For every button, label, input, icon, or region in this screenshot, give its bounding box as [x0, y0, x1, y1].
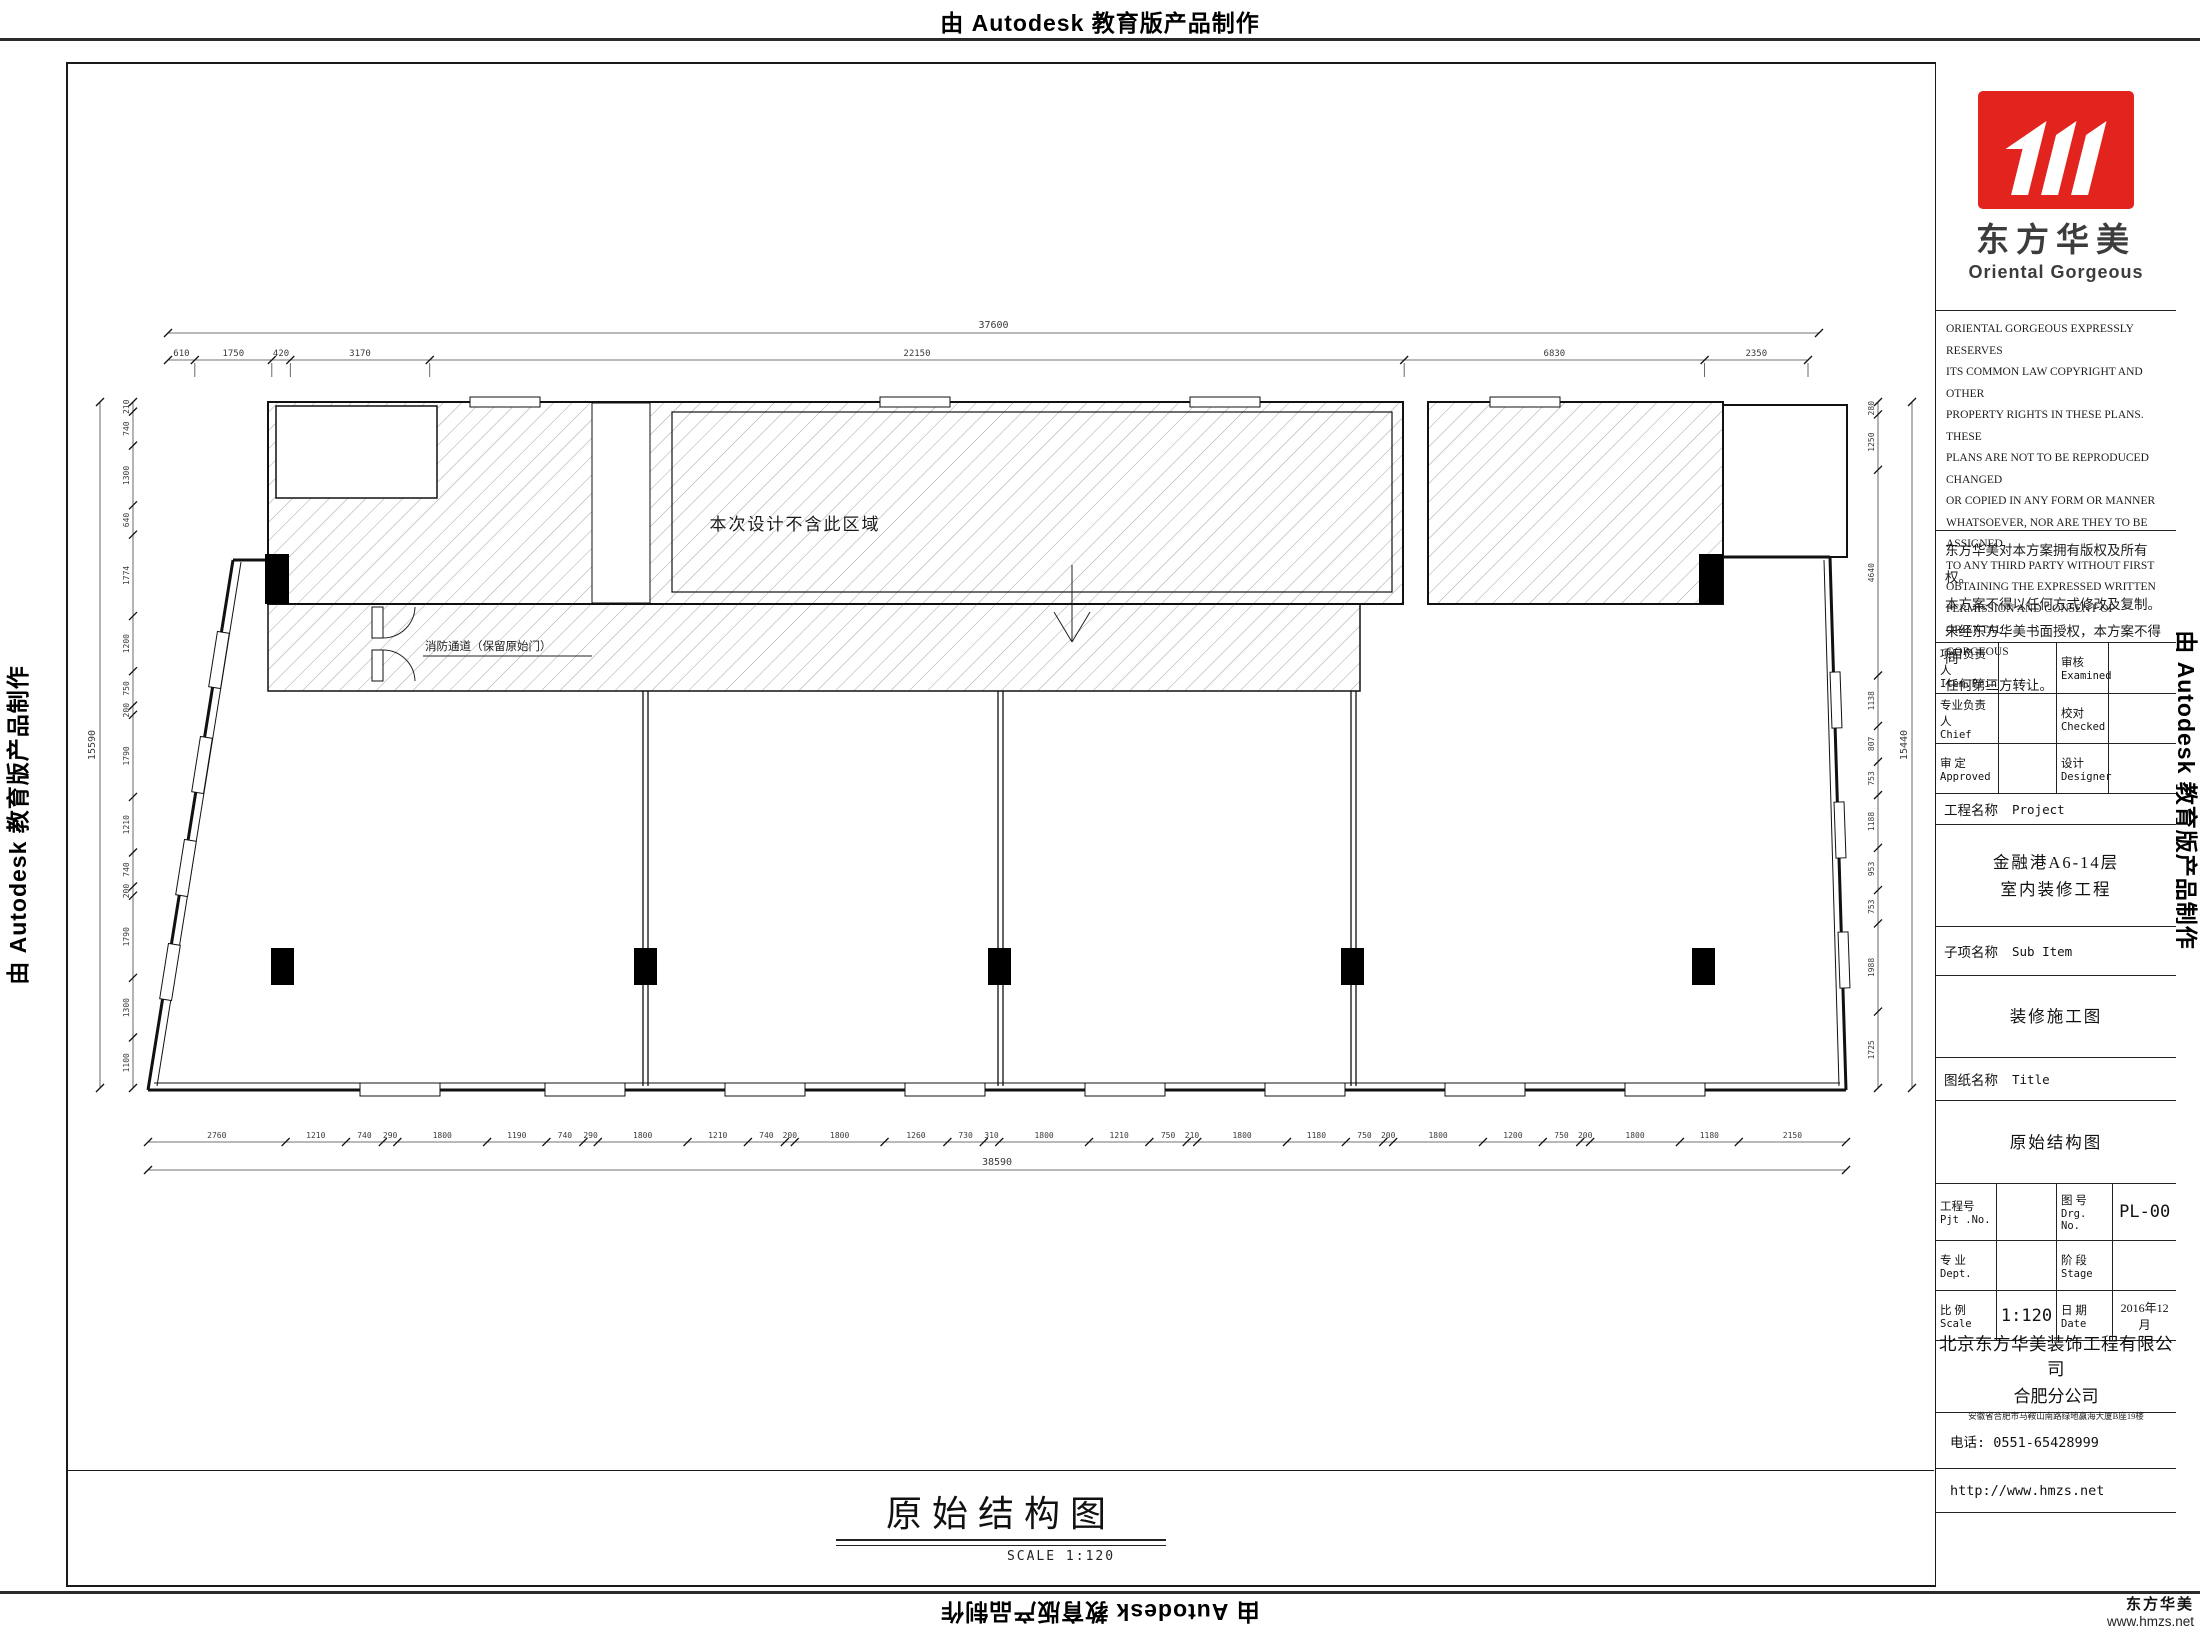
dim-label: 210: [122, 399, 131, 414]
dim-label: 2350: [1745, 349, 1767, 359]
dept-label: 专 业Dept.: [1936, 1241, 1996, 1290]
dim-label: 753: [1867, 899, 1876, 914]
drg-label: 图 号Drg. No.: [2056, 1184, 2112, 1240]
personnel-value: [1998, 643, 2056, 693]
dim-label: 22150: [903, 349, 930, 359]
personnel-label: 专业负责人Chief: [1936, 693, 1998, 743]
dim-label: 1200: [122, 634, 131, 653]
fire-corridor-note: 消防通道（保留原始门）: [425, 639, 552, 653]
watermark-brand: 东方华美: [2107, 1596, 2194, 1613]
company-name: 北京东方华美装饰工程有限公司: [1936, 1331, 2176, 1381]
bottom-separator-line: [0, 1591, 2200, 1594]
personnel-label: 设计Designer: [2056, 743, 2108, 793]
oriental-gorgeous-logo-icon: [1976, 89, 2136, 211]
copyright-chinese: 东方华美对本方案拥有版权及所有权。 本方案不得以任何方式修改及复制。 未经东方华…: [1936, 530, 2176, 642]
dim-label: 1180: [1307, 1131, 1326, 1140]
dim-label: 1210: [1110, 1131, 1129, 1140]
watermark: 东方华美 www.hmzs.net: [2107, 1596, 2194, 1630]
dim-total-label: 38590: [982, 1157, 1012, 1168]
dim-label: 1800: [830, 1131, 849, 1140]
stage-value: [2112, 1241, 2176, 1290]
dim-label: 740: [759, 1131, 774, 1140]
dim-label: 3170: [349, 349, 371, 359]
dim-label: 740: [122, 862, 131, 877]
personnel-value: [2108, 743, 2176, 793]
dim-label: 1800: [1034, 1131, 1053, 1140]
logo-en-text: Oriental Gorgeous: [1968, 262, 2143, 283]
top-separator-line: [0, 38, 2200, 41]
autodesk-banner-bottom: 由 Autodesk 教育版产品制作: [940, 1597, 1260, 1631]
dim-label: 1988: [1867, 958, 1876, 977]
dim-label: 2760: [207, 1131, 226, 1140]
floor-plan-svg: 本次设计不含此区域 消防通道（保留原始门） 376006101750420317…: [66, 62, 1935, 1470]
grid-row-dept: 专 业Dept. 阶 段Stage: [1936, 1240, 2176, 1290]
personnel-value: [1998, 693, 2056, 743]
personnel-label: 校对Checked: [2056, 693, 2108, 743]
dim-label: 200: [122, 703, 131, 718]
dim-label: 290: [583, 1131, 598, 1140]
personnel-label: 审核Examined: [2056, 643, 2108, 693]
empty-cell: [1936, 1512, 2176, 1587]
dim-label: 730: [958, 1131, 973, 1140]
watermark-site: www.hmzs.net: [2107, 1613, 2194, 1630]
dim-label: 1800: [1232, 1131, 1251, 1140]
dim-label: 1800: [1625, 1131, 1644, 1140]
phone-cell: 电话: 0551-65428999: [1936, 1412, 2176, 1468]
dim-label: 1300: [122, 998, 131, 1017]
dim-label: 4640: [1867, 563, 1876, 582]
stage-label: 阶 段Stage: [2056, 1241, 2112, 1290]
dim-label: 807: [1867, 736, 1876, 751]
logo-cn-text: 东方华美: [1976, 213, 2136, 261]
dim-label: 200: [783, 1131, 798, 1140]
grid-row-pjt: 工程号Pjt .No. 图 号Drg. No. PL-00: [1936, 1183, 2176, 1240]
dim-label: 1100: [122, 1053, 131, 1072]
dim-label: 753: [1867, 771, 1876, 786]
dim-label: 750: [1161, 1131, 1176, 1140]
dim-label: 1800: [633, 1131, 652, 1140]
sheet-title-value: 原始结构图: [1936, 1100, 2176, 1183]
project-name: 金融港A6-14层 室内装修工程: [1936, 824, 2176, 926]
dim-label: 1800: [433, 1131, 452, 1140]
dim-label: 1190: [507, 1131, 526, 1140]
dim-label: 210: [1185, 1131, 1200, 1140]
dim-label: 640: [122, 513, 131, 528]
dim-label: 750: [1554, 1131, 1569, 1140]
dept-value: [1996, 1241, 2056, 1290]
dim-label: 1180: [1700, 1131, 1719, 1140]
door-leaf: [372, 650, 383, 681]
personnel-table: 项目负责人Item.Prin 审核Examined 专业负责人Chief 校对C…: [1936, 642, 2176, 793]
subitem-label-row: 子项名称Sub Item: [1936, 926, 2176, 975]
dim-label: 740: [122, 421, 131, 436]
dim-label: 953: [1867, 861, 1876, 876]
dim-label: 1774: [122, 566, 131, 585]
dim-label: 290: [383, 1131, 398, 1140]
dim-label: 1210: [306, 1131, 325, 1140]
dim-label: 200: [1381, 1131, 1396, 1140]
dim-label: 1300: [122, 466, 131, 485]
upper-right-room: [1723, 405, 1847, 557]
company-cell: 北京东方华美装饰工程有限公司 合肥分公司 安徽省合肥市马鞍山南路绿地赢海大厦B座…: [1936, 1340, 2176, 1412]
dim-total-label: 37600: [978, 320, 1008, 331]
door-leaf: [372, 607, 383, 638]
dim-total-label: 15440: [1899, 730, 1910, 760]
copyright-english: ORIENTAL GORGEOUS EXPRESSLY RESERVES ITS…: [1936, 310, 2176, 530]
dim-label: 740: [558, 1131, 573, 1140]
excluded-region-note: 本次设计不含此区域: [710, 515, 881, 534]
dim-label: 310: [984, 1131, 999, 1140]
dim-label: 280: [1867, 401, 1876, 416]
autodesk-banner-left: 由 Autodesk 教育版产品制作: [0, 665, 33, 985]
personnel-label: 审 定Approved: [1936, 743, 1998, 793]
dim-label: 1800: [1428, 1131, 1447, 1140]
pjt-value: [1996, 1184, 2056, 1240]
dim-label: 610: [173, 349, 189, 359]
dim-label: 6830: [1544, 349, 1566, 359]
logo-cell: 东方华美 Oriental Gorgeous: [1936, 62, 2176, 310]
top-hatched-band: [268, 397, 1847, 604]
drawing-title: 原始结构图: [886, 1485, 1116, 1537]
dim-label: 750: [1357, 1131, 1372, 1140]
dim-label: 1260: [906, 1131, 925, 1140]
sheet-title-label-row: 图纸名称Title: [1936, 1057, 2176, 1100]
personnel-value: [2108, 693, 2176, 743]
dim-label: 750: [122, 681, 131, 696]
dim-label: 1138: [1867, 691, 1876, 710]
dim-label: 1188: [1867, 812, 1876, 831]
title-block: 东方华美 Oriental Gorgeous ORIENTAL GORGEOUS…: [1935, 62, 2176, 1587]
personnel-value: [1998, 743, 2056, 793]
website-cell: http://www.hmzs.net: [1936, 1468, 2176, 1512]
project-label-row: 工程名称Project: [1936, 793, 2176, 824]
title-underline: [836, 1539, 1166, 1546]
dim-label: 740: [357, 1131, 372, 1140]
scale-note: SCALE 1:120: [188, 1549, 1934, 1564]
partition-walls: [643, 691, 1356, 1086]
subitem-value: 装修施工图: [1936, 975, 2176, 1057]
dim-label: 1790: [122, 927, 131, 946]
dim-label: 200: [122, 884, 131, 899]
dim-label: 200: [1578, 1131, 1593, 1140]
dim-label: 1790: [122, 746, 131, 765]
dim-label: 2150: [1783, 1131, 1802, 1140]
dim-label: 1750: [222, 349, 244, 359]
personnel-value: [2108, 643, 2176, 693]
dim-label: 1210: [708, 1131, 727, 1140]
upper-left-room: [276, 406, 437, 498]
autodesk-banner-top: 由 Autodesk 教育版产品制作: [0, 4, 2200, 38]
dim-label: 420: [273, 349, 289, 359]
personnel-label: 项目负责人Item.Prin: [1936, 643, 1998, 693]
dim-label: 1210: [122, 815, 131, 834]
pjt-label: 工程号Pjt .No.: [1936, 1184, 1996, 1240]
drawing-title-band: 原始结构图 SCALE 1:120: [68, 1470, 1934, 1586]
company-branch: 合肥分公司: [2014, 1382, 2099, 1407]
dim-label: 1200: [1503, 1131, 1522, 1140]
dim-total-label: 15590: [87, 730, 98, 760]
drg-value: PL-00: [2112, 1184, 2176, 1240]
dim-label: 1250: [1867, 432, 1876, 451]
dim-label: 1725: [1867, 1040, 1876, 1059]
